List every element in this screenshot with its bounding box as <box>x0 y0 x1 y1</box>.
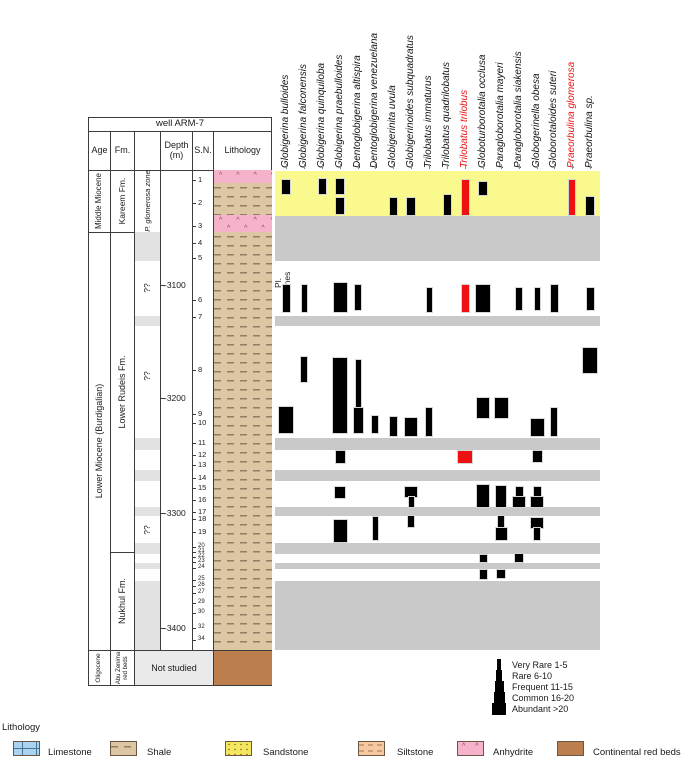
occurrence-bar <box>279 407 293 433</box>
shale-swatch-icon <box>110 741 137 756</box>
occurrence-bar <box>302 285 307 312</box>
sample-number: 14 <box>198 473 206 482</box>
occurrence-bar <box>458 451 472 463</box>
sample-number: 26 <box>198 582 205 588</box>
occurrence-bar <box>477 398 489 418</box>
sample-tick <box>192 478 196 479</box>
sample-number: 12 <box>198 450 206 459</box>
sample-tick <box>192 552 196 553</box>
sample-tick <box>192 568 196 569</box>
sample-tick <box>192 203 196 204</box>
sample-tick <box>192 414 196 415</box>
sample-tick <box>192 423 196 424</box>
species-column-tick <box>393 164 394 169</box>
well-title: well ARM-7 <box>89 118 271 131</box>
zone-gap-block <box>135 581 160 650</box>
sandstone-swatch-icon <box>225 741 252 756</box>
divider <box>160 170 161 650</box>
occurrence-bar <box>405 418 417 436</box>
sample-number: 9 <box>198 409 202 418</box>
occurrence-bar <box>476 285 490 312</box>
occurrence-bar <box>516 487 523 497</box>
anhydrite-swatch-icon: ^ ^ <box>457 741 484 756</box>
abundance-step <box>494 692 505 703</box>
species-label: Trilobatus trilobus <box>459 90 471 168</box>
sample-number: 30 <box>198 609 205 615</box>
abundance-step-label: Very Rare 1-5 <box>512 660 568 670</box>
chart-gray-band <box>275 470 600 481</box>
age-oligocene: Oligocene <box>89 650 110 686</box>
species-label: Praeorbulina glomerosa <box>566 62 578 168</box>
sample-tick <box>192 243 196 244</box>
header-fm-cell: Fm. <box>110 131 135 171</box>
sample-tick <box>192 370 196 371</box>
species-column-tick <box>590 164 591 169</box>
chart-gray-band <box>275 563 600 569</box>
chart-gray-band <box>275 581 600 650</box>
header-sn-cell: S.N. <box>192 131 214 171</box>
sample-number: 2 <box>198 198 202 207</box>
species-label: Globigerinita uvula <box>387 85 399 168</box>
occurrence-bar <box>495 398 508 418</box>
occurrence-bar <box>534 528 540 540</box>
occurrence-bar <box>282 180 290 194</box>
lithology-anhydrite-band: ^ ^ ^ ^ ^ ^ ^ ^ <box>214 215 272 232</box>
species-label: Globigerina bulloides <box>280 75 292 168</box>
occurrence-bar <box>373 517 378 540</box>
species-column-tick <box>375 164 376 169</box>
occurrence-bar <box>551 285 558 312</box>
zone-unknown-label: ?? <box>139 519 155 541</box>
zone-gap-block <box>135 232 160 261</box>
sample-tick <box>192 455 196 456</box>
depth-tick-label: -3400 <box>164 623 186 633</box>
lithology-red-beds <box>214 651 272 685</box>
sample-tick <box>192 180 196 181</box>
divider <box>192 170 193 650</box>
siltstone-label: Siltstone <box>397 747 433 758</box>
zone-glomerosa: P. glomerosa zone <box>135 170 160 232</box>
occurrence-bar <box>533 451 542 462</box>
sample-number: 7 <box>198 312 202 321</box>
header-depth-cell: Depth (m) <box>160 131 193 171</box>
occurrence-bar <box>534 487 541 497</box>
species-label: Paragloborotalia mayeri <box>495 62 507 168</box>
limestone-label: Limestone <box>48 747 92 758</box>
species-column-tick <box>537 164 538 169</box>
zone-gap-block <box>135 563 160 569</box>
occurrence-bar <box>498 516 504 528</box>
occurrence-bar <box>583 348 597 373</box>
occurrence-bar <box>336 198 344 214</box>
zone-gap-block <box>135 543 160 554</box>
species-label: Paragloborotalia siakensis <box>513 51 525 168</box>
occurrence-bar <box>408 516 414 527</box>
siltstone-swatch-icon <box>358 741 385 756</box>
sample-number: 18 <box>198 514 206 523</box>
sample-tick <box>192 300 196 301</box>
sample-number: 19 <box>198 527 206 536</box>
occurrence-bar <box>569 180 575 215</box>
sample-number: 27 <box>198 589 205 595</box>
occurrence-bar <box>497 570 505 578</box>
chart-gray-band <box>275 543 600 554</box>
sample-number: 24 <box>198 564 205 570</box>
sample-tick <box>192 580 196 581</box>
occurrence-bar <box>301 357 307 382</box>
sample-tick <box>192 443 196 444</box>
species-column-tick <box>286 164 287 169</box>
occurrence-bar <box>479 182 487 195</box>
occurrence-bar <box>462 285 469 312</box>
sample-number: 29 <box>198 599 205 605</box>
sample-number: 10 <box>198 418 206 427</box>
sample-tick <box>192 640 196 641</box>
depth-tick-label: -3100 <box>164 280 186 290</box>
chart-gray-band <box>275 438 600 450</box>
zone-gap-block <box>135 470 160 481</box>
sandstone-label: Sandstone <box>263 747 308 758</box>
well-title-cell: well ARM-7 <box>88 117 272 132</box>
occurrence-bar <box>531 419 544 436</box>
sample-number: 3 <box>198 221 202 230</box>
occurrence-bar <box>336 451 345 463</box>
occurrence-bar <box>283 285 290 312</box>
fm-lower-rudeis: Lower Rudeis Fm. <box>111 232 134 552</box>
sample-number: 16 <box>198 495 206 504</box>
occurrence-bar <box>531 518 543 528</box>
species-label: Globigerinoides subquadratus <box>405 35 417 168</box>
chart-gray-band <box>275 507 600 516</box>
occurrence-bar <box>513 497 525 507</box>
sample-tick <box>192 465 196 466</box>
sample-tick <box>192 519 196 520</box>
species-column-tick <box>519 164 520 169</box>
occurrence-bar <box>531 497 543 507</box>
occurrence-bar <box>354 408 363 433</box>
shale-label: Shale <box>147 747 171 758</box>
depth-tick-label: -3300 <box>164 508 186 518</box>
sample-number: 8 <box>198 365 202 374</box>
zone-gap-block <box>135 507 160 516</box>
sample-tick <box>192 603 196 604</box>
occurrence-bar <box>587 288 594 310</box>
occurrence-bar <box>477 485 489 507</box>
abundance-step-label: Common 16-20 <box>512 693 574 703</box>
lithology-shale <box>214 232 272 650</box>
sample-number: 4 <box>198 238 202 247</box>
lithology-anhydrite-band: ^ ^ ^ ^ <box>214 170 272 183</box>
header-depth: Depth (m) <box>161 132 192 170</box>
species-column-tick <box>465 164 466 169</box>
sample-tick <box>192 500 196 501</box>
figure-root: well ARM-7 Age Fm. Pl. zones Depth (m) S… <box>0 0 685 760</box>
species-label: Globigerina quinquiloba <box>316 63 328 168</box>
species-label: Trilobatus quadrilobatus <box>441 62 453 168</box>
species-column-tick <box>411 164 412 169</box>
occurrence-bar <box>334 520 347 542</box>
occurrence-bar <box>405 487 417 497</box>
species-column-tick <box>429 164 430 169</box>
species-label: Praeorbulina sp. <box>584 95 596 168</box>
sample-tick <box>192 258 196 259</box>
species-column-tick <box>447 164 448 169</box>
age-middle-miocene: Middle Miocene <box>89 170 110 232</box>
species-label: Dentoglobigerina altispira <box>352 55 364 168</box>
red-beds-swatch-icon <box>557 741 584 756</box>
occurrence-bar <box>516 288 522 310</box>
occurrence-bar <box>586 197 594 215</box>
occurrence-bar <box>515 554 523 562</box>
abundance-step <box>496 670 502 681</box>
sample-number: 32 <box>198 624 205 630</box>
header-age-cell: Age <box>88 131 111 171</box>
zone-gap-block <box>135 316 160 326</box>
sample-number: 11 <box>198 438 206 447</box>
occurrence-bar <box>336 179 344 194</box>
occurrence-bar <box>372 416 378 433</box>
species-label: Trilobatus immaturus <box>423 75 435 168</box>
species-column-tick <box>483 164 484 169</box>
sample-tick <box>192 488 196 489</box>
header-lithology: Lithology <box>214 132 271 170</box>
species-label: Globoturborotalia occlusa <box>477 55 489 168</box>
sample-tick <box>192 593 196 594</box>
sample-tick <box>192 532 196 533</box>
sample-number: 15 <box>198 483 206 492</box>
red-beds-label: Continental red beds <box>593 747 681 758</box>
sample-tick <box>192 613 196 614</box>
abundance-step <box>492 703 506 715</box>
sample-number: 6 <box>198 295 202 304</box>
zone-gap-block <box>135 438 160 450</box>
sample-number: 1 <box>198 175 202 184</box>
depth-tick-label: -3200 <box>164 393 186 403</box>
zone-unknown-label: ?? <box>139 365 155 387</box>
species-label: Globorotaloides suteri <box>548 71 560 168</box>
occurrence-bar <box>480 555 487 562</box>
occurrence-bar <box>390 198 397 215</box>
fm-nukhul: Nukhul Fm. <box>111 552 134 650</box>
occurrence-bar <box>496 486 506 507</box>
sample-tick <box>192 628 196 629</box>
chart-gray-band <box>275 316 600 326</box>
sample-number: 5 <box>198 253 202 262</box>
occurrence-bar <box>319 179 326 194</box>
sample-tick <box>192 317 196 318</box>
sample-tick <box>192 226 196 227</box>
occurrence-bar <box>462 180 469 215</box>
header-lithology-cell: Lithology <box>213 131 272 171</box>
lithology-legend-title: Lithology <box>2 722 40 733</box>
abundance-step <box>495 681 504 692</box>
species-label: Globogerinella obesa <box>531 73 543 168</box>
species-label: Dentoglobigerina venezuelana <box>369 33 381 168</box>
occurrence-bar <box>535 288 540 310</box>
sample-number: 13 <box>198 460 206 469</box>
header-age: Age <box>89 132 110 170</box>
chart-gray-band <box>275 216 600 261</box>
header-fm: Fm. <box>111 132 134 170</box>
species-label: Globigerina falconensis <box>298 64 310 168</box>
occurrence-bar <box>355 285 361 310</box>
species-column-tick <box>358 164 359 169</box>
occurrence-bar <box>334 283 347 312</box>
fm-kareem: Kareem Fm. <box>111 170 134 232</box>
abundance-step <box>497 659 501 670</box>
species-column-tick <box>340 164 341 169</box>
header-sn: S.N. <box>193 132 213 170</box>
species-column-tick <box>554 164 555 169</box>
lithology-shale <box>214 183 272 215</box>
occurrence-bar <box>333 358 347 433</box>
species-column-tick <box>501 164 502 169</box>
sample-tick <box>192 547 196 548</box>
species-label: Globigerina praebulloides <box>334 55 346 168</box>
species-column-tick <box>322 164 323 169</box>
occurrence-bar <box>496 528 507 540</box>
species-column-tick <box>572 164 573 169</box>
occurrence-bar <box>356 360 361 408</box>
sample-tick <box>192 512 196 513</box>
age-lower-miocene: Lower Miocene (Burdigalian) <box>89 232 110 650</box>
sample-tick <box>192 586 196 587</box>
occurrence-bar <box>480 570 487 579</box>
abundance-step-label: Rare 6-10 <box>512 671 552 681</box>
header-zones-cell: Pl. zones <box>134 131 161 171</box>
occurrence-bar <box>407 198 415 215</box>
abundance-step-label: Frequent 11-15 <box>512 682 573 692</box>
sample-tick <box>192 557 196 558</box>
sample-number: 34 <box>198 636 205 642</box>
sample-tick <box>192 562 196 563</box>
occurrence-bar <box>409 497 414 507</box>
fm-abu-zenima: Abu Zenima red beds <box>111 650 134 686</box>
occurrence-bar <box>335 487 345 498</box>
limestone-swatch-icon <box>13 741 40 756</box>
occurrence-bar <box>426 408 432 436</box>
occurrence-bar <box>551 408 557 436</box>
abundance-step-label: Abundant >20 <box>512 704 568 714</box>
occurrence-bar <box>427 288 432 312</box>
anhydrite-label: Anhydrite <box>493 747 533 758</box>
not-studied-cell: Not studied <box>135 651 213 685</box>
occurrence-bar <box>444 195 451 215</box>
species-column-tick <box>304 164 305 169</box>
occurrence-bar <box>390 417 397 436</box>
zone-unknown-label: ?? <box>139 277 155 299</box>
